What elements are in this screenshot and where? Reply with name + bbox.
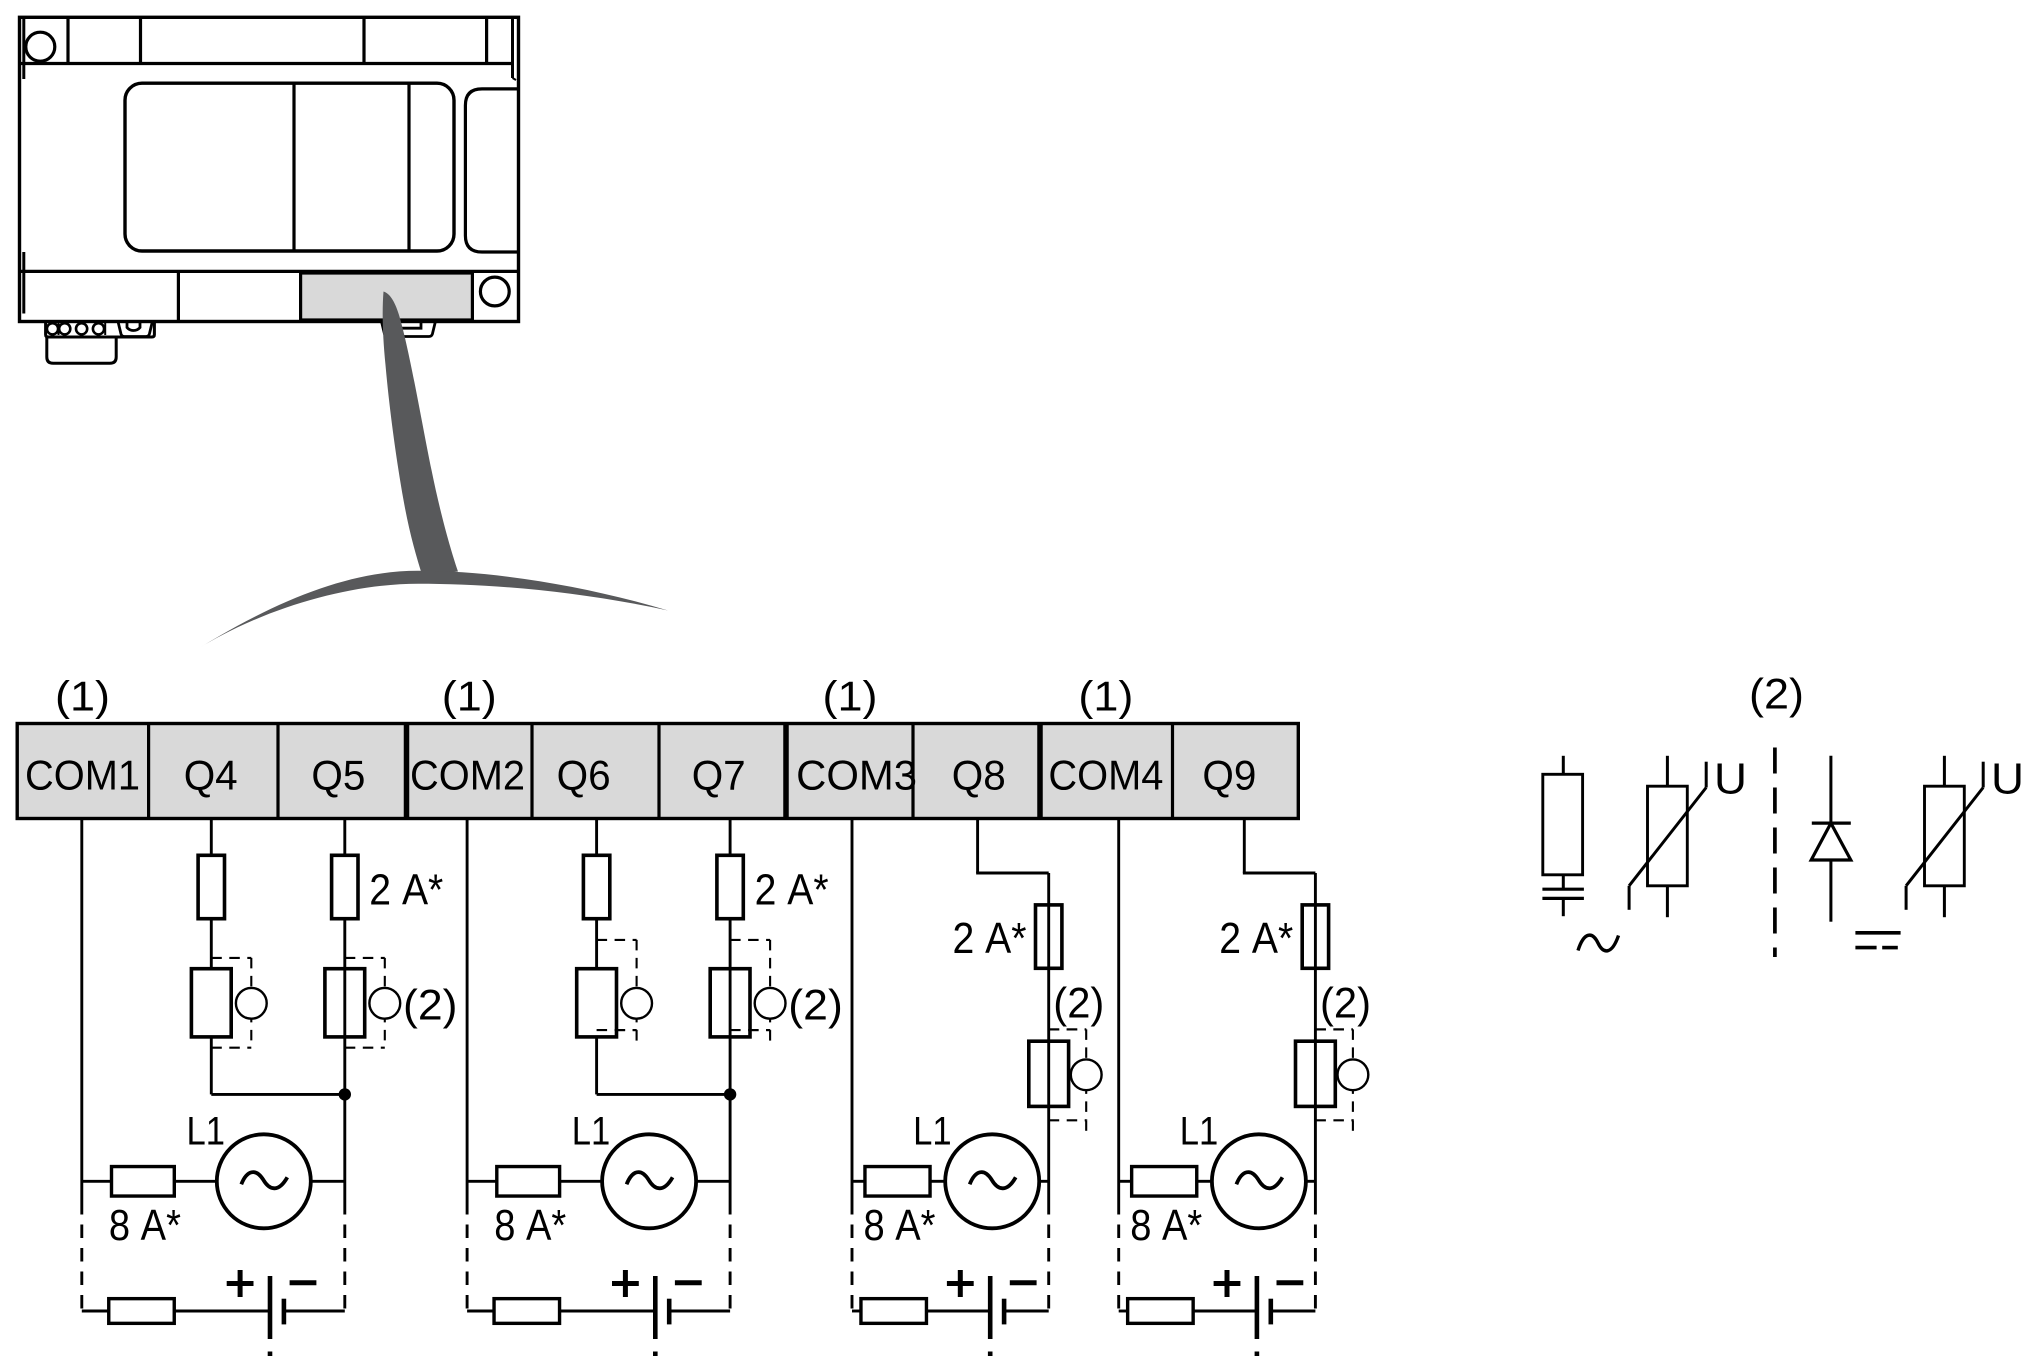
svg-text:2 A*: 2 A* [953, 914, 1027, 963]
svg-text:L1: L1 [1180, 1109, 1219, 1153]
svg-text:Q9: Q9 [1202, 752, 1256, 799]
svg-text:2 A*: 2 A* [369, 866, 443, 915]
svg-text:L1: L1 [913, 1109, 952, 1153]
svg-text:U: U [1714, 755, 1747, 804]
svg-text:8 A*: 8 A* [864, 1201, 936, 1250]
svg-text:8 A*: 8 A* [109, 1201, 181, 1250]
svg-text:Q5: Q5 [311, 752, 365, 799]
svg-text:Q6: Q6 [557, 752, 611, 799]
svg-text:(1): (1) [55, 672, 110, 719]
svg-text:8 A*: 8 A* [1130, 1201, 1202, 1250]
svg-text:U: U [1991, 755, 2024, 804]
svg-text:(1): (1) [442, 672, 497, 719]
svg-text:2 A*: 2 A* [1219, 914, 1293, 963]
svg-text:8 A*: 8 A* [494, 1201, 566, 1250]
svg-text:COM3: COM3 [796, 752, 917, 799]
svg-text:(2): (2) [1053, 979, 1104, 1027]
svg-text:Q8: Q8 [952, 752, 1006, 799]
svg-text:COM1: COM1 [25, 752, 140, 799]
svg-text:COM2: COM2 [410, 752, 525, 799]
svg-text:2 A*: 2 A* [755, 866, 829, 915]
svg-text:COM4: COM4 [1048, 752, 1163, 799]
svg-text:L1: L1 [187, 1109, 226, 1153]
svg-text:(2): (2) [403, 981, 458, 1029]
svg-text:Q7: Q7 [692, 752, 746, 799]
svg-text:L1: L1 [572, 1109, 611, 1153]
svg-text:(1): (1) [1078, 672, 1133, 719]
svg-text:(2): (2) [788, 981, 843, 1029]
svg-text:(2): (2) [1749, 671, 1804, 719]
svg-text:(2): (2) [1320, 979, 1371, 1027]
svg-text:Q4: Q4 [184, 752, 238, 799]
svg-text:(1): (1) [823, 672, 878, 719]
